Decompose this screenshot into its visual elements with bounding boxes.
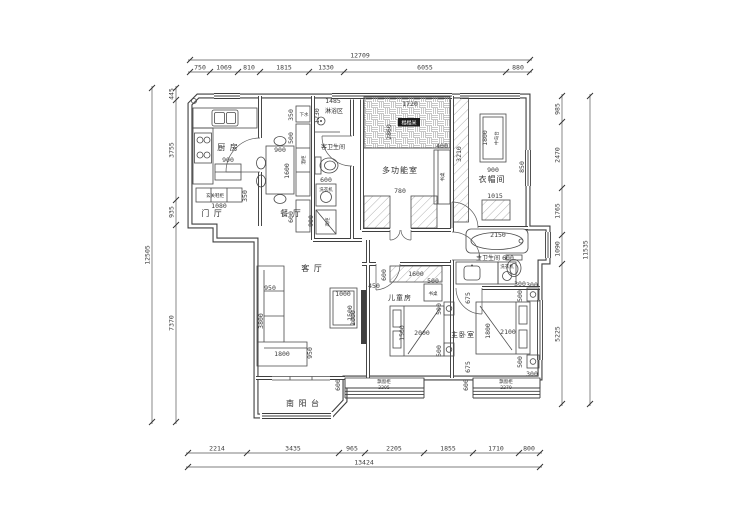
dim-cloak-1015: 1015 bbox=[487, 192, 503, 200]
label-tall-cabinet: 高柜 bbox=[324, 217, 331, 226]
dim-desk-multi: 400 bbox=[436, 142, 448, 150]
dim-right-segments-label: 5225 bbox=[554, 326, 562, 342]
label-drain: 下水 bbox=[300, 111, 309, 118]
label-bay-kids: 飘窗柜 bbox=[377, 378, 391, 385]
label-wine-cabinet: 酒柜 bbox=[300, 155, 307, 164]
dim-left-total: 12505 bbox=[144, 85, 156, 425]
dim-top-segments-label: 880 bbox=[512, 64, 524, 72]
dim-bottom-segments-label: 800 bbox=[523, 445, 535, 453]
dim-right-segments: 9852470176510905225 bbox=[554, 93, 566, 407]
room-guest-bath: 客卫生间 bbox=[321, 143, 345, 151]
dim-tv-d: 450 bbox=[368, 282, 380, 290]
dim-mbed-gap1: 675 bbox=[464, 292, 472, 304]
balcony-slider bbox=[272, 377, 330, 381]
dim-kitchen-cab: 900 bbox=[222, 156, 234, 164]
dim-wardrobe-kids-d: 600 bbox=[380, 269, 388, 281]
dim-shower-w: 1485 bbox=[325, 97, 341, 105]
room-balcony: 南 阳 台 bbox=[286, 398, 320, 408]
dim-multi-door: 780 bbox=[394, 187, 406, 195]
dim-sofa-l: 3800 bbox=[257, 313, 265, 329]
dim-mbed-w: 2100 bbox=[500, 328, 516, 336]
dim-left-segments: 44537559357370 bbox=[168, 85, 180, 425]
dim-top-segments: 7501069810181513306055880 bbox=[187, 64, 533, 76]
label-shoe-cabinet: 玄关鞋柜 bbox=[206, 192, 224, 199]
dim-table-l: 1600 bbox=[283, 163, 291, 179]
room-master-bath: 主卫生间 bbox=[476, 254, 500, 262]
door-multi-double bbox=[390, 230, 411, 240]
dim-shoe-d: 350 bbox=[241, 190, 249, 202]
dim-mbath-300: 300 bbox=[514, 280, 526, 288]
dim-bed-kids-w: 2000 bbox=[414, 329, 430, 337]
dim-bay-kids: 2205 bbox=[378, 385, 390, 391]
dim-bottom-segments-label: 1855 bbox=[440, 445, 456, 453]
dim-right-segments-label: 1765 bbox=[554, 203, 562, 219]
dim-bottom-total: 13424 bbox=[185, 459, 543, 471]
dim-island-w: 900 bbox=[487, 166, 499, 174]
dim-tatami-w: 1720 bbox=[402, 100, 418, 108]
cloak-angled-cabinet bbox=[482, 200, 510, 220]
dim-top-segments-label: 6055 bbox=[417, 64, 433, 72]
floorplan-page: 1270975010698101815133060558802214343596… bbox=[0, 0, 740, 523]
toilet-guest bbox=[315, 157, 338, 174]
dim-right-total-label: 11535 bbox=[582, 240, 590, 260]
dim-chaise-w: 1800 bbox=[274, 350, 290, 358]
dim-mbed-gap2: 675 bbox=[464, 361, 472, 373]
dim-tallcab: 900 bbox=[307, 215, 315, 227]
dim-top-total: 12709 bbox=[187, 52, 533, 64]
dim-left-segments-label: 7370 bbox=[168, 315, 176, 331]
svg-text:榻榻米: 榻榻米 bbox=[401, 120, 416, 127]
dim-drain: 350 bbox=[287, 109, 295, 121]
room-shower: 淋浴区 bbox=[325, 107, 343, 115]
vanity-master bbox=[456, 262, 498, 284]
label-washer-guest: 洗衣机 bbox=[319, 186, 333, 193]
dim-bottom-segments-label: 965 bbox=[346, 445, 358, 453]
label-desk-multi: 书桌 bbox=[439, 172, 446, 181]
dim-bay-kids-d: 600 bbox=[334, 379, 342, 391]
dim-bottom-segments-label: 2205 bbox=[386, 445, 402, 453]
room-cloak: 衣帽间 bbox=[479, 174, 506, 184]
tv bbox=[361, 290, 366, 344]
dim-strip-600: 600 bbox=[287, 211, 295, 223]
dim-top-segments-label: 1069 bbox=[216, 64, 232, 72]
dim-left-segments-label: 3755 bbox=[168, 142, 176, 158]
dim-right-segments-label: 1090 bbox=[554, 241, 562, 257]
dim-sofa-d: 950 bbox=[264, 284, 276, 292]
label-desk-kids: 书桌 bbox=[429, 290, 438, 297]
dim-left-segments-label: 445 bbox=[168, 88, 176, 100]
dim-top-segments-label: 1330 bbox=[318, 64, 334, 72]
floorplan-drawing: 1270975010698101815133060558802214343596… bbox=[0, 0, 740, 523]
label-washer-master: 洗衣机 bbox=[500, 263, 514, 270]
dim-bottom-segments: 22143435965220518551710800 bbox=[185, 445, 543, 457]
dim-shower-d: 1230 bbox=[313, 108, 321, 124]
room-kids: 儿童房 bbox=[388, 293, 412, 302]
dim-top-segments-label: 1815 bbox=[276, 64, 292, 72]
dim-mbed-l: 1800 bbox=[484, 323, 492, 339]
dim-bottom-segments-label: 2214 bbox=[209, 445, 225, 453]
dim-desk-kids: 500 bbox=[427, 277, 439, 285]
dim-wardrobe-kids: 1600 bbox=[408, 270, 424, 278]
shelf-multi-right bbox=[411, 196, 437, 228]
dim-left-segments-label: 935 bbox=[168, 206, 176, 218]
dim-right-segments-label: 985 bbox=[554, 103, 562, 115]
dim-cloak-strip: 3210 bbox=[455, 146, 463, 162]
dim-island-l: 1800 bbox=[481, 130, 489, 146]
stove bbox=[195, 133, 212, 163]
dim-washer-master: 600 bbox=[502, 254, 514, 262]
dim-washer-guest: 600 bbox=[320, 176, 332, 184]
room-multi: 多功能室 bbox=[382, 165, 418, 175]
dim-nstand-kids1: 500 bbox=[435, 303, 443, 315]
dim-top-segments-label: 810 bbox=[243, 64, 255, 72]
dim-bed-kids-l: 1500 bbox=[398, 325, 406, 341]
chip-tatami: 榻榻米 bbox=[398, 118, 420, 127]
dim-mnstand2: 500 bbox=[516, 356, 524, 368]
dim-bay-master-d: 600 bbox=[462, 379, 470, 391]
dim-multi-d: 2860 bbox=[385, 124, 393, 140]
dim-tub: 2150 bbox=[490, 231, 506, 239]
dim-strip-500: 500 bbox=[287, 132, 295, 144]
dim-top-segments-label: 750 bbox=[194, 64, 206, 72]
label-bay-master: 飘窗柜 bbox=[499, 378, 513, 385]
room-master: 主卧室 bbox=[451, 330, 475, 339]
dim-left-total-label: 12505 bbox=[144, 245, 152, 265]
dim-tv-l: 2000 bbox=[349, 310, 357, 326]
dim-chaise-d: 950 bbox=[306, 347, 314, 359]
dim-bottom-segments-label: 1710 bbox=[488, 445, 504, 453]
shelf-multi-left bbox=[364, 196, 390, 228]
room-kitchen: 厨 房 bbox=[217, 142, 239, 152]
dim-mnstand2-d: 300 bbox=[526, 370, 538, 378]
dim-table-w: 900 bbox=[274, 146, 286, 154]
dim-right-total: 11535 bbox=[582, 93, 594, 407]
dim-top-total-label: 12709 bbox=[350, 52, 370, 60]
dim-shoe-w: 1080 bbox=[211, 202, 227, 210]
dim-bottom-segments-label: 3435 bbox=[285, 445, 301, 453]
dim-bay-master: 2270 bbox=[500, 385, 512, 391]
dim-right-segments-label: 2470 bbox=[554, 147, 562, 163]
dim-bottom-total-label: 13424 bbox=[354, 459, 374, 467]
label-island: 中岛台 bbox=[493, 131, 500, 145]
room-living: 客 厅 bbox=[301, 263, 323, 273]
dim-nstand-kids2: 500 bbox=[435, 345, 443, 357]
dim-mnstand1-d: 300 bbox=[526, 281, 538, 289]
dim-ctable-w: 1000 bbox=[335, 290, 351, 298]
dim-cloak-win: 850 bbox=[518, 161, 526, 173]
dim-mnstand1: 500 bbox=[516, 290, 524, 302]
